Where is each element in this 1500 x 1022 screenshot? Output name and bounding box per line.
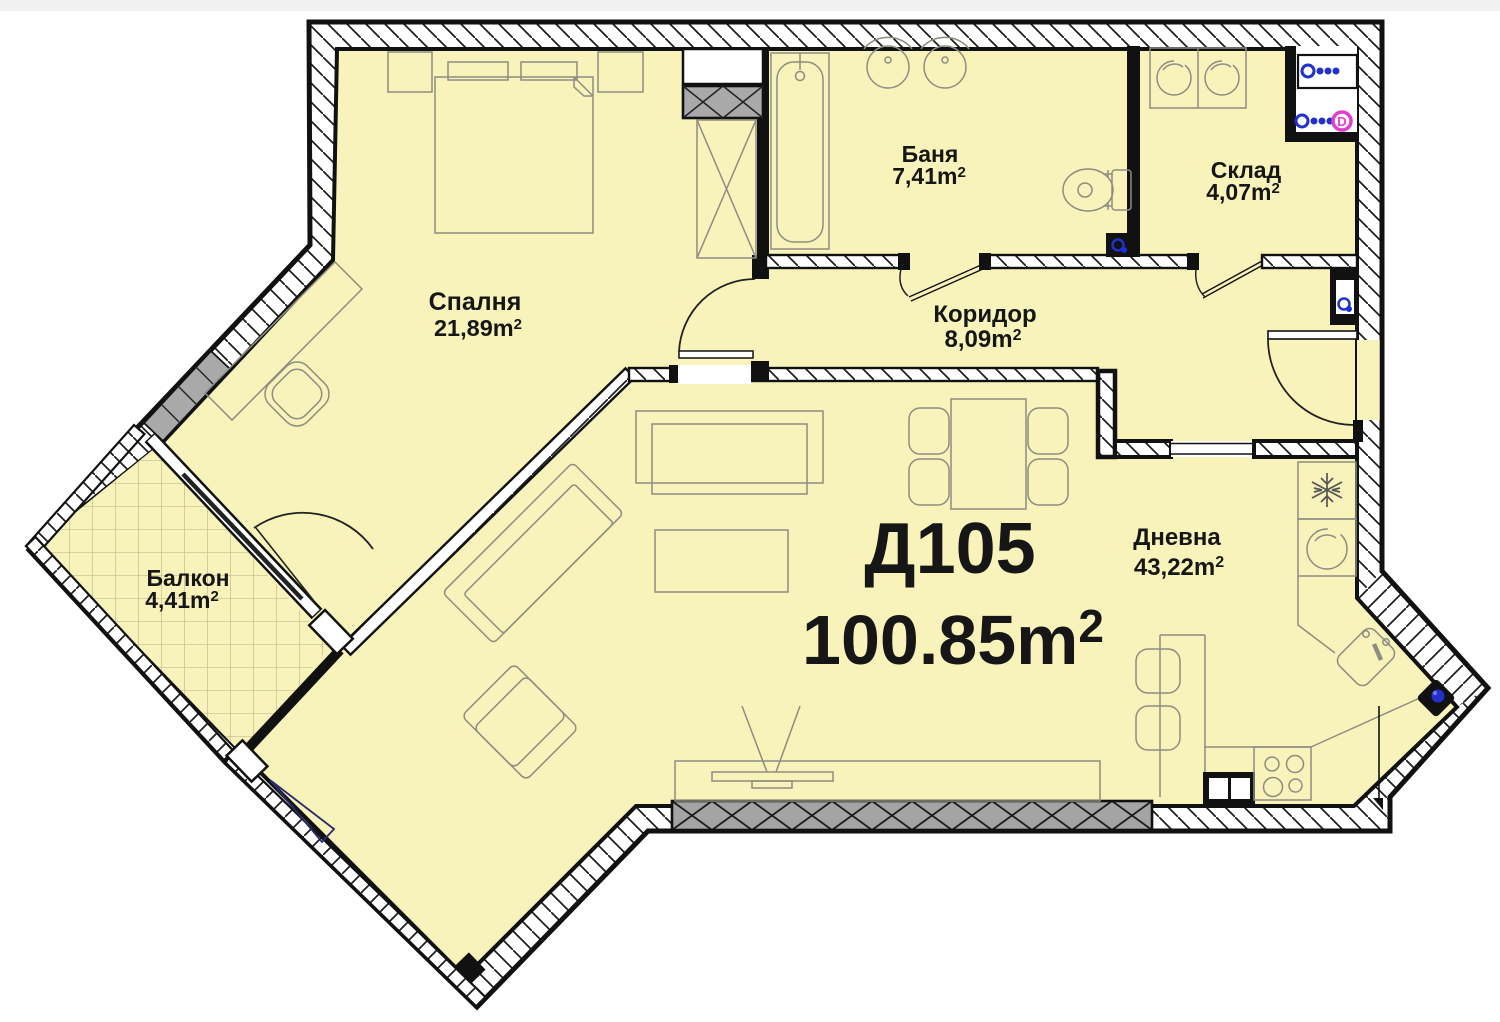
svg-text:Спалня: Спалня [429, 288, 522, 316]
svg-text:4,07m2: 4,07m2 [1206, 179, 1280, 205]
svg-text:Дневна: Дневна [1133, 524, 1221, 551]
svg-text:8,09m2: 8,09m2 [945, 326, 1022, 353]
svg-text:43,22m2: 43,22m2 [1134, 554, 1224, 581]
svg-text:D: D [1337, 114, 1346, 129]
svg-text:21,89m2: 21,89m2 [434, 315, 522, 341]
svg-text:100.85m2: 100.85m2 [802, 600, 1104, 679]
svg-text:7,41m2: 7,41m2 [892, 163, 966, 189]
svg-text:Коридор: Коридор [933, 301, 1036, 328]
svg-text:Д105: Д105 [864, 509, 1035, 589]
svg-text:4,41m2: 4,41m2 [145, 587, 219, 613]
